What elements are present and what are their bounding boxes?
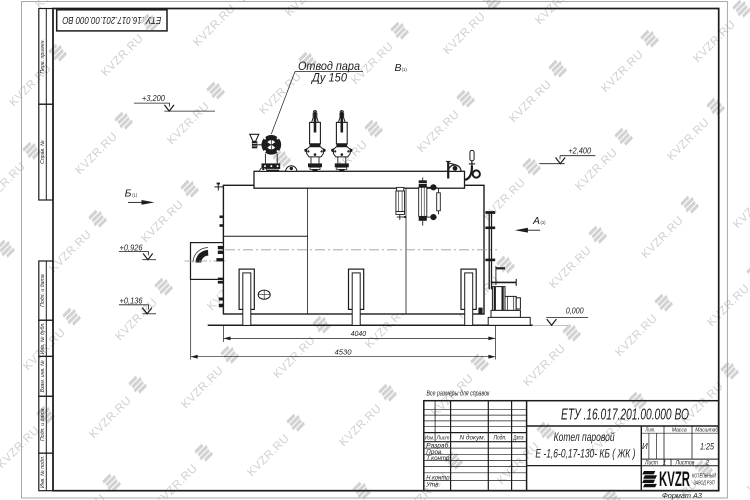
svg-text:KVZR.RU: KVZR.RU <box>639 214 686 261</box>
svg-text:KVZR.RU: KVZR.RU <box>245 432 292 479</box>
svg-text:В: В <box>394 62 401 74</box>
svg-text:KVZR.RU: KVZR.RU <box>337 402 384 449</box>
svg-text:KVZR.RU: KVZR.RU <box>283 0 330 19</box>
svg-text:KVZR.RU: KVZR.RU <box>191 2 238 49</box>
svg-text:KVZR.RU: KVZR.RU <box>47 228 94 275</box>
svg-text:Инв. № подл.: Инв. № подл. <box>40 456 46 488</box>
svg-text:KVZR.RU: KVZR.RU <box>507 78 554 125</box>
svg-text:Б: Б <box>125 188 132 200</box>
svg-text:Подп. и дата: Подп. и дата <box>40 408 46 441</box>
svg-text:KVZR.RU: KVZR.RU <box>7 62 54 109</box>
svg-text:N докум.: N докум. <box>460 435 486 442</box>
svg-text:+2,400: +2,400 <box>568 145 591 155</box>
svg-text:KVZR.RU: KVZR.RU <box>547 244 594 291</box>
svg-text:KVZR.RU: KVZR.RU <box>665 116 712 163</box>
svg-text:И: И <box>642 442 648 451</box>
svg-text:КОТЕЛЬНЫЙ: КОТЕЛЬНЫЙ <box>692 472 716 480</box>
svg-text:(1): (1) <box>132 193 138 198</box>
svg-text:Лист: Лист <box>644 459 658 466</box>
svg-text:ЗАВОД РЭП: ЗАВОД РЭП <box>694 481 715 487</box>
svg-text:KVZR.RU: KVZR.RU <box>73 130 120 177</box>
svg-text:Подп. и дата: Подп. и дата <box>40 274 46 307</box>
svg-text:KVZR.RU: KVZR.RU <box>271 334 318 381</box>
svg-text:KVZR.RU: KVZR.RU <box>495 440 542 487</box>
svg-text:Ду 150: Ду 150 <box>310 73 348 85</box>
svg-text:Е -1,6-0,17-130- КБ ( ЖК ): Е -1,6-0,17-130- КБ ( ЖК ) <box>535 449 635 461</box>
svg-text:Лит.: Лит. <box>645 428 656 434</box>
svg-text:KVZR.RU: KVZR.RU <box>0 258 2 305</box>
svg-text:Перв. примен.: Перв. примен. <box>40 39 46 73</box>
svg-text:KVZR.RU: KVZR.RU <box>99 32 146 79</box>
svg-text:1:25: 1:25 <box>700 442 715 452</box>
svg-text:4040: 4040 <box>351 329 367 338</box>
svg-text:Подп.: Подп. <box>494 435 507 442</box>
svg-text:Справ. №: Справ. № <box>40 140 46 164</box>
svg-text:Листов: Листов <box>675 459 695 466</box>
svg-text:А: А <box>532 215 540 227</box>
svg-text:KVZR.RU: KVZR.RU <box>613 312 660 359</box>
svg-text:ЕТУ .16.017.201.00.000 ВО: ЕТУ .16.017.201.00.000 ВО <box>62 14 161 26</box>
svg-text:+0,926: +0,926 <box>120 242 143 252</box>
svg-text:ЕТУ .16.017.201.00.000 ВО: ЕТУ .16.017.201.00.000 ВО <box>561 406 689 423</box>
svg-text:KVZR.RU: KVZR.RU <box>599 48 646 95</box>
svg-text:(1): (1) <box>540 220 546 225</box>
svg-text:KVZR.RU: KVZR.RU <box>153 462 200 500</box>
svg-text:Котел паровой: Котел паровой <box>554 432 615 444</box>
svg-text:1: 1 <box>663 459 666 466</box>
svg-text:KVZR.RU: KVZR.RU <box>61 492 108 500</box>
svg-text:Т.контр.: Т.контр. <box>426 455 451 462</box>
svg-text:Все размеры для справок: Все размеры для справок <box>427 388 490 397</box>
svg-text:Взам. инв. №: Взам. инв. № <box>40 360 46 392</box>
svg-text:KVZR.RU: KVZR.RU <box>441 10 488 57</box>
svg-text:KVZR.RU: KVZR.RU <box>745 448 750 495</box>
svg-text:Масса: Масса <box>672 428 687 434</box>
svg-text:KVZR.RU: KVZR.RU <box>0 424 42 471</box>
svg-text:Лист: Лист <box>436 436 450 442</box>
svg-text:Дата: Дата <box>513 435 524 442</box>
svg-text:0,000: 0,000 <box>566 305 584 315</box>
svg-text:Утв.: Утв. <box>425 481 440 488</box>
svg-text:Инв. № дубл.: Инв. № дубл. <box>40 322 46 354</box>
svg-text:KVZR.RU: KVZR.RU <box>415 108 462 155</box>
svg-text:4530: 4530 <box>335 347 352 356</box>
svg-text:KVZR.RU: KVZR.RU <box>533 0 580 27</box>
svg-text:KVZR.RU: KVZR.RU <box>731 184 750 231</box>
svg-text:(1): (1) <box>402 67 408 72</box>
svg-text:Масштаб: Масштаб <box>695 428 719 434</box>
svg-text:KVZR.RU: KVZR.RU <box>139 198 186 245</box>
svg-text:KVZR.RU: KVZR.RU <box>179 364 226 411</box>
svg-text:KVZR.RU: KVZR.RU <box>521 342 568 389</box>
svg-text:Формат А3: Формат А3 <box>662 491 703 500</box>
svg-text:KVZR.RU: KVZR.RU <box>481 176 528 223</box>
svg-text:KVZR: KVZR <box>659 468 690 491</box>
svg-text:+0,136: +0,136 <box>120 296 143 306</box>
svg-text:2: 2 <box>705 459 710 466</box>
svg-text:Изм.: Изм. <box>425 436 435 442</box>
svg-text:+3,200: +3,200 <box>142 93 165 103</box>
svg-text:KVZR.RU: KVZR.RU <box>691 18 738 65</box>
svg-text:KVZR.RU: KVZR.RU <box>87 394 134 441</box>
svg-text:KVZR.RU: KVZR.RU <box>0 160 28 207</box>
